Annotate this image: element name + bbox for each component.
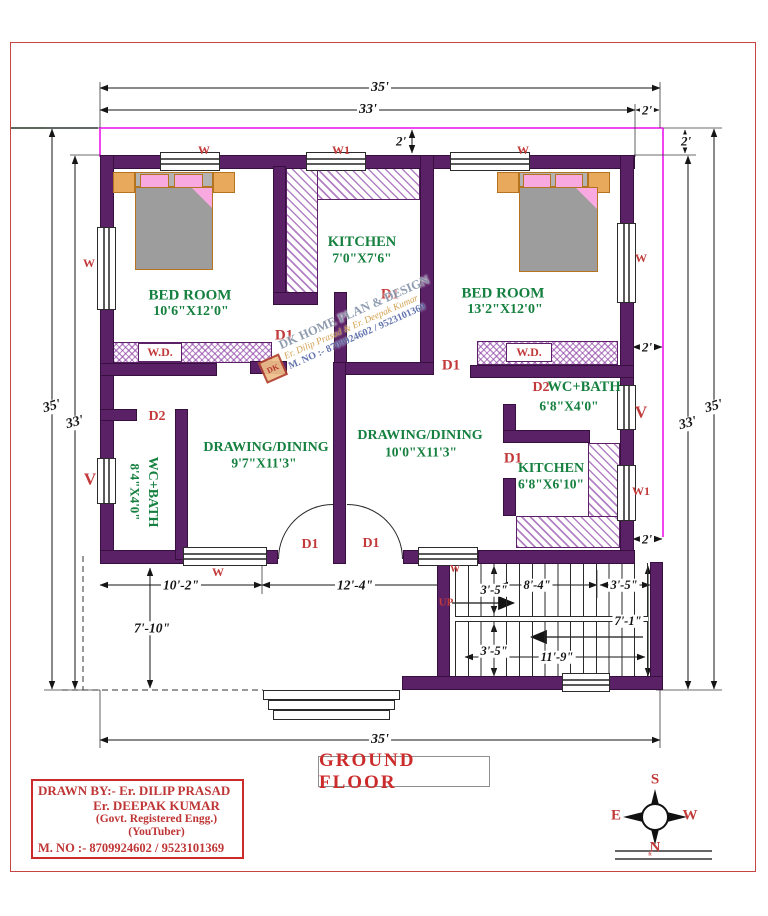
room-size-bedroom2: 13'2"X12'0" [467, 303, 542, 317]
door-label: D2 [148, 410, 165, 424]
wall-kitchen1-bottom [273, 292, 318, 305]
wall-stair-bottom [402, 676, 663, 690]
kitchen2-platform-bottom [516, 516, 620, 548]
door-label: D2 [532, 381, 549, 395]
window-label: W [450, 565, 460, 575]
window-bottom-drawing [418, 547, 478, 566]
dim-bottom-overall: 35' [369, 733, 391, 747]
wall-bed1-bottom-a [100, 363, 217, 376]
compass-south: S [651, 773, 659, 788]
door-label: D1 [442, 359, 460, 374]
room-size-kitchen1: 7'0"X7'6" [332, 251, 391, 265]
room-name-kitchen2: KITCHEN [518, 462, 584, 476]
wall-stair-left [437, 562, 450, 690]
dim-wall-offset-a: 2' [640, 341, 654, 354]
drawn-by-box: DRAWN BY:- Er. DILIP PRASAD Er. DEEPAK K… [31, 779, 244, 859]
dim-stair-run: 8'-4" [521, 579, 552, 592]
dim-stair-width-b: 3'-5" [608, 579, 639, 592]
entry-step [263, 690, 400, 700]
vent-left-wc1 [97, 458, 116, 504]
window-label: W [517, 144, 529, 156]
dim-offset-corner: 2' [679, 135, 693, 148]
credential-line: (Govt. Registered Engg.) [38, 813, 237, 826]
dim-porch-depth: 7'-10" [132, 621, 172, 635]
room-size-bedroom1: 10'6"X12'0" [153, 305, 228, 319]
dim-stair-depth: 7'-1" [612, 615, 643, 628]
wall-bottom-door-jamb [403, 550, 419, 564]
compass-west: W [683, 809, 698, 824]
window-label: W [198, 144, 210, 156]
dim-porch-width: 10'-2" [161, 578, 201, 592]
window-left-bedroom1 [97, 227, 116, 310]
room-name-drawing2: DRAWING/DINING [357, 429, 482, 443]
wall-under-kitchen1 [333, 362, 434, 375]
dim-top-overall: 35' [369, 81, 391, 95]
wall-bed1-kitchen [273, 166, 286, 305]
wall-center-partition [333, 362, 346, 564]
window-label: W1 [332, 144, 350, 156]
room-size-drawing1: 9'7"X11'3" [231, 456, 296, 470]
compass-rose [615, 789, 712, 859]
mobile-line: M. NO :- 8709924602 / 9523101369 [38, 841, 237, 855]
wall-bed2-bottom [470, 365, 634, 378]
room-size-kitchen2: 6'8"X6'10" [518, 477, 584, 491]
side-table [213, 172, 235, 193]
wardrobe-label: W.D. [147, 346, 173, 358]
dim-top-inner: 33' [357, 103, 379, 117]
wall-stair-right [650, 562, 663, 690]
vent-label: V [635, 404, 647, 421]
window-bottom-wc1 [183, 547, 267, 566]
dim-top-offset: 2' [640, 104, 654, 117]
wardrobe-label: W.D. [516, 346, 542, 358]
door-label: D1 [362, 537, 379, 551]
wardrobe-bedroom1 [113, 342, 272, 363]
side-table [497, 172, 519, 193]
door-label: D1 [504, 452, 522, 467]
room-name-kitchen1: KITCHEN [328, 235, 397, 250]
room-size-drawing2: 10'0"X11'3" [385, 445, 457, 459]
room-name-wc1: WC+BATH [145, 457, 159, 528]
drawn-by-line: DRAWN BY:- Er. DILIP PRASAD [38, 784, 237, 799]
window-label: W [635, 252, 647, 264]
vent-label: V [84, 471, 96, 488]
side-table [113, 172, 135, 193]
dim-stair-width-a: 3'-5" [478, 584, 509, 597]
window-stair-bottom [562, 673, 610, 692]
credential2-line: (YouTuber) [38, 826, 237, 839]
author2-line: Er. DEEPAK KUMAR [38, 799, 237, 814]
floor-plan-sheet: .dl{stroke:#151515;stroke-width:1;marker… [0, 0, 768, 916]
wall-wc2-bottom [503, 430, 590, 443]
room-name-wc2: WC+BATH [547, 380, 620, 395]
mattress [519, 187, 598, 272]
room-name-drawing1: DRAWING/DINING [203, 441, 328, 455]
wall-kitchen1-right [420, 155, 434, 375]
mattress [135, 187, 213, 270]
room-size-wc2: 6'8"X4'0" [539, 399, 598, 413]
entry-step [273, 710, 390, 720]
compass-scale-label: ft [648, 853, 651, 858]
kitchen1-platform-left [286, 168, 318, 293]
door-label: D1 [301, 538, 318, 552]
up-label: UP [439, 598, 454, 609]
wall-wc1-right [175, 409, 188, 560]
dim-stair-length: 11'-9" [539, 651, 576, 664]
room-size-wc1: 8'4"X4'0" [129, 463, 142, 520]
wall-wc1-top-stub [100, 409, 137, 421]
window-label: W [212, 566, 224, 578]
room-name-bedroom2: BED ROOM [462, 287, 545, 302]
entry-step [268, 700, 395, 710]
window-label: W [83, 257, 95, 269]
window-label: W1 [632, 485, 650, 497]
dim-entry-width: 12'-4" [335, 578, 375, 592]
drawing-title: GROUND FLOOR [318, 756, 490, 787]
wall-kitchen2-left [503, 478, 516, 516]
window-right-bedroom2 [617, 223, 636, 303]
dim-offset-kitchen: 2' [394, 135, 408, 148]
compass-east: E [611, 809, 621, 824]
wall-bottom-right [478, 550, 635, 564]
dim-stair-width-c: 3'-5" [478, 645, 509, 658]
room-name-bedroom1: BED ROOM [149, 289, 232, 304]
window-top-bedroom1 [160, 152, 220, 171]
dim-wall-offset-b: 2' [640, 533, 654, 546]
